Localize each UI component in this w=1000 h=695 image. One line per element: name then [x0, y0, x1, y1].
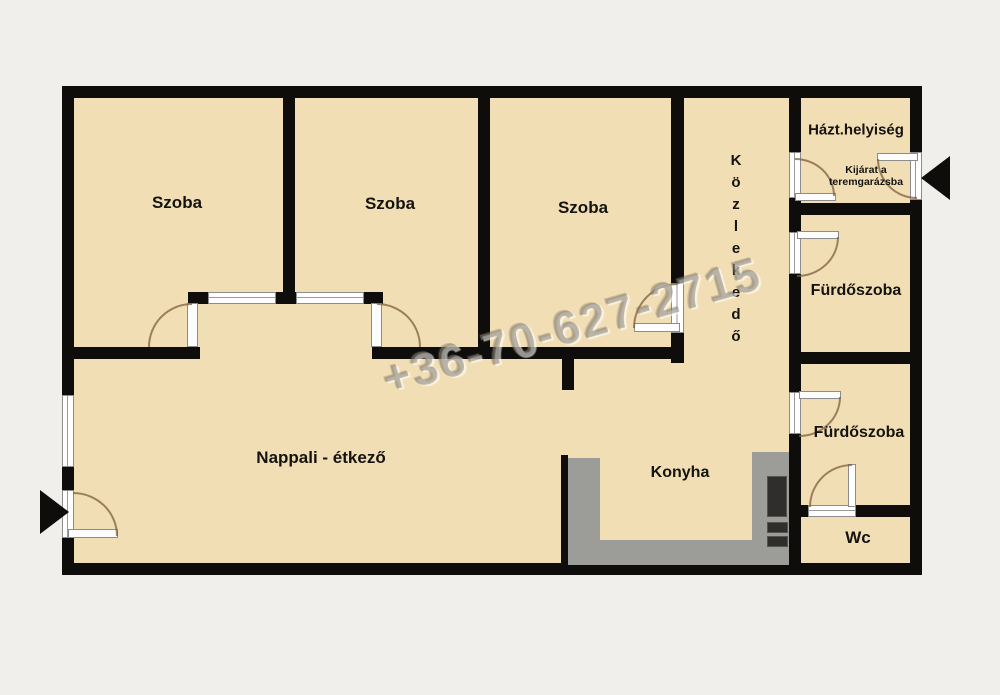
garage-exit-arrow-icon — [921, 156, 950, 200]
kitchen-fridge-icon — [767, 476, 787, 517]
wall-szoba1-szoba2 — [283, 86, 295, 304]
wall-szoba2-szoba3 — [478, 86, 490, 359]
floor-plan: Szoba Szoba Szoba Közlekedő Házt.helyisé… — [0, 0, 1000, 695]
wall-szoba1-bottom — [62, 347, 200, 359]
room-label-haztartasi: Házt.helyiség — [808, 122, 904, 139]
wall-haztartasi-bottom — [789, 203, 922, 215]
window-szoba1-alcove — [208, 292, 276, 304]
room-label-furdoszoba2: Fürdőszoba — [814, 424, 905, 442]
wall-furdoszoba1-bottom — [789, 352, 922, 364]
wall-kitchen-stub-left — [561, 455, 568, 565]
room-label-szoba3: Szoba — [558, 198, 608, 218]
window-livingroom-left — [62, 395, 74, 467]
room-label-furdoszoba1: Fürdőszoba — [811, 282, 902, 300]
window-szoba2-alcove — [296, 292, 364, 304]
room-label-szoba1: Szoba — [152, 193, 202, 213]
room-label-konyha: Konyha — [651, 464, 710, 482]
room-label-szoba2: Szoba — [365, 194, 415, 214]
wall-bottom — [62, 563, 922, 575]
garage-exit-note-line2: teremgarázsba — [829, 176, 903, 188]
room-label-nappali: Nappali - étkező — [256, 448, 385, 468]
room-label-wc: Wc — [845, 528, 871, 548]
entry-arrow-icon — [40, 490, 69, 534]
kitchen-stove-icon-2 — [767, 536, 788, 547]
garage-exit-note-line1: Kijárat a — [845, 164, 886, 176]
kitchen-stove-icon-1 — [767, 522, 788, 533]
